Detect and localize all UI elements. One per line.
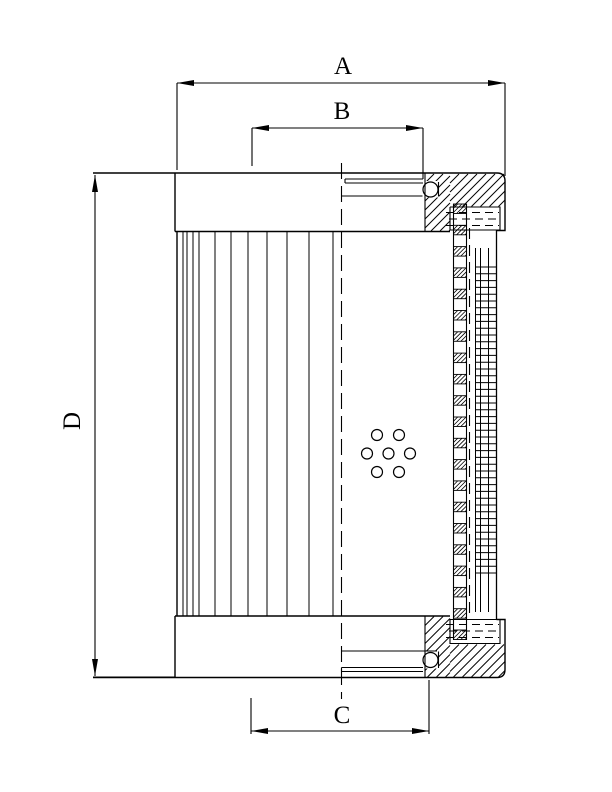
dimension-d-label: D [59, 412, 86, 430]
drawing-page: A B C D [0, 0, 612, 792]
dimension-c-label: C [334, 702, 351, 729]
top-cap-body-outline [175, 173, 450, 232]
dimension-a-label: A [334, 53, 352, 80]
bypass-hole [372, 467, 383, 478]
arrowhead [92, 659, 98, 676]
top-cap-outer-outline [93, 173, 505, 231]
bottom-cap-body-outline [175, 616, 450, 678]
dimension-arrowheads [92, 80, 505, 734]
bypass-hole [383, 448, 394, 459]
arrowhead [251, 728, 268, 734]
dimension-d [93, 175, 175, 677]
pleated-media-lines [177, 232, 333, 617]
bottom-cap-outer-outline [93, 620, 505, 678]
bypass-hole [372, 430, 383, 441]
bypass-hole [362, 448, 373, 459]
arrowhead [488, 80, 505, 86]
dimension-b-label: B [334, 98, 351, 125]
dimension-a [177, 83, 505, 176]
arrowhead [412, 728, 429, 734]
bypass-hole-pattern [362, 430, 416, 478]
arrowhead [252, 125, 269, 131]
section-hatching [425, 174, 505, 677]
dimension-lines [92, 80, 505, 734]
bypass-hole [394, 467, 405, 478]
bypass-hole [405, 448, 416, 459]
outlines [93, 163, 505, 699]
arrowhead [92, 175, 98, 192]
arrowhead [406, 125, 423, 131]
arrowhead [177, 80, 194, 86]
dimension-b [252, 128, 423, 179]
oring-groove-bottom [422, 651, 440, 669]
filter-element-technical-drawing: A B C D [0, 0, 612, 792]
support-mesh-rungs [476, 267, 497, 573]
bypass-hole [394, 430, 405, 441]
support-mesh-rails [476, 231, 497, 620]
